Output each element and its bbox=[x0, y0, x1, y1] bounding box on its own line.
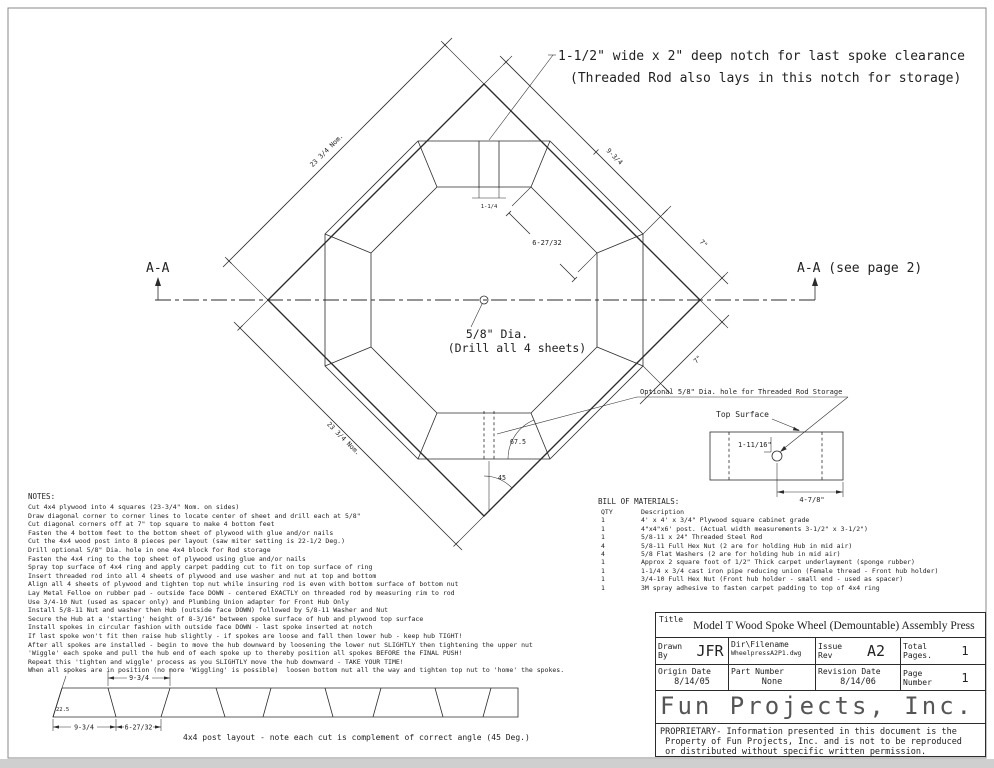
notch-annotation: 1-1/2" wide x 2" deep notch for last spo… bbox=[489, 49, 965, 140]
table-cell-desc: 1-1/4 x 3/4 cast iron pipe reducing unio… bbox=[641, 567, 988, 575]
rod-storage-detail: Optional 5/8" Dia. hole for Threaded Rod… bbox=[497, 388, 848, 504]
total-pages-value: 1 bbox=[947, 644, 983, 658]
filename-value: WheelpressA2P1.dwg bbox=[731, 649, 813, 658]
angle-dims: 67.5 45 bbox=[484, 420, 534, 488]
bom-title: BILL OF MATERIALS: bbox=[598, 497, 988, 506]
table-row: 45/8-11 Full Hex Nut (2 are for holding … bbox=[598, 542, 988, 550]
notes-lines: Cut 4x4 plywood into 4 squares (23-3/4" … bbox=[28, 503, 628, 675]
drawing-page: 1-1/4 5/8" Dia. (Drill all 4 sheets) 23 … bbox=[0, 0, 994, 768]
part-number-value: None bbox=[731, 676, 813, 688]
center-hole-leader bbox=[471, 304, 482, 327]
table-cell-qty: 1 bbox=[598, 516, 641, 524]
issue-rev-label: Issue Rev bbox=[818, 642, 854, 660]
notch-note-1: 1-1/2" wide x 2" deep notch for last spo… bbox=[558, 49, 965, 64]
center-hole-label-1: 5/8" Dia. bbox=[466, 327, 528, 341]
section-right-label: A-A (see page 2) bbox=[797, 261, 922, 276]
title-block: Title Model T Wood Spoke Wheel (Demounta… bbox=[655, 612, 986, 757]
notch-width-dim: 1-1/4 bbox=[481, 204, 498, 210]
post-angle-label: 22.5 bbox=[56, 707, 69, 713]
table-row: 11-1/4 x 3/4 cast iron pipe reducing uni… bbox=[598, 567, 988, 575]
post-dim-bottom-left-label: 9-3/4 bbox=[74, 724, 94, 732]
table-row: 15/8-11 x 24" Threaded Steel Rod bbox=[598, 533, 988, 541]
table-cell-qty: 1 bbox=[598, 567, 641, 575]
issue-rev-value: A2 bbox=[854, 642, 898, 660]
page-edge-shadow bbox=[0, 759, 994, 768]
company-name: Fun Projects, Inc. bbox=[656, 691, 985, 724]
spoke-notch: 1-1/4 bbox=[472, 141, 506, 210]
table-cell-desc: 5/8-11 Full Hex Nut (2 are for holding H… bbox=[641, 542, 988, 550]
table-cell-qty: 4 bbox=[598, 542, 641, 550]
dim-upper-right-side: 9-3/4 7" bbox=[484, 56, 728, 300]
drawn-by-label: Drawn By bbox=[658, 642, 694, 660]
table-cell-qty: 1 bbox=[598, 525, 641, 533]
dim-lower-left-label: 23 3/4 Nom. bbox=[325, 420, 362, 457]
table-cell-desc: 4"x4"x6' post. (Actual width measurement… bbox=[641, 525, 988, 533]
notch-note-2: (Threaded Rod also lays in this notch fo… bbox=[570, 71, 961, 86]
origin-date-value: 8/14/05 bbox=[658, 676, 726, 688]
table-cell-desc: 5/8 Flat Washers (2 are for holding hub … bbox=[641, 550, 988, 558]
title-label: Title bbox=[656, 613, 683, 624]
bom-section: BILL OF MATERIALS: QTY Description 14' x… bbox=[598, 497, 988, 592]
table-cell-qty: 1 bbox=[598, 533, 641, 541]
proprietary-notice: PROPRIETARY- Information presented in th… bbox=[656, 724, 985, 757]
dim-corner-lower-label: 7" bbox=[692, 354, 703, 365]
post-dim-top-label: 9-3/4 bbox=[129, 674, 149, 682]
bom-header-row: QTY Description bbox=[598, 508, 988, 516]
table-row: 1Approx 2 square foot of 1/2" Thick carp… bbox=[598, 558, 988, 566]
optional-hole-leader-left bbox=[497, 397, 637, 434]
total-pages-label: Total Pages. bbox=[903, 642, 947, 660]
storage-hole bbox=[772, 451, 782, 461]
page-number-value: 1 bbox=[947, 671, 983, 685]
table-row: 14"x4"x6' post. (Actual width measuremen… bbox=[598, 525, 988, 533]
table-cell-qty: 4 bbox=[598, 550, 641, 558]
dim-corner-upper-label: 7" bbox=[698, 238, 709, 249]
origin-date-label: Origin Date bbox=[658, 667, 726, 676]
angle-corner-label: 45 bbox=[498, 474, 506, 482]
post-dim-bottom-right-label: 6-27/32 bbox=[125, 724, 153, 732]
storage-block-outline bbox=[710, 432, 843, 480]
drawn-by-value: JFR bbox=[694, 642, 726, 660]
section-left-label: A-A bbox=[146, 261, 170, 276]
bom-qty-header: QTY bbox=[598, 508, 641, 516]
table-row: 13M spray adhesive to fasten carpet padd… bbox=[598, 584, 988, 592]
page-number-label: Page Number bbox=[903, 669, 947, 687]
revision-date-value: 8/14/06 bbox=[818, 676, 898, 688]
center-hole-label-2: (Drill all 4 sheets) bbox=[448, 341, 586, 355]
table-row: 45/8 Flat Washers (2 are for holding hub… bbox=[598, 550, 988, 558]
post-dim-bottom: 9-3/4 6-27/32 bbox=[53, 719, 161, 732]
post-outline bbox=[53, 688, 518, 717]
drawing-title: Model T Wood Spoke Wheel (Demountable) A… bbox=[683, 613, 975, 632]
notes-title: NOTES: bbox=[28, 492, 628, 501]
table-cell-qty: 1 bbox=[598, 558, 641, 566]
post-layout-view: 22.5 9-3/4 bbox=[53, 672, 530, 742]
notes-section: NOTES: Cut 4x4 plywood into 4 squares (2… bbox=[28, 492, 628, 675]
table-row: 13/4-10 Full Hex Nut (Front hub holder -… bbox=[598, 575, 988, 583]
table-row: 14' x 4' x 3/4" Plywood square cabinet g… bbox=[598, 516, 988, 524]
angle-block-label: 67.5 bbox=[510, 438, 526, 446]
part-number-label: Part Number bbox=[731, 667, 813, 676]
optional-hole-label: Optional 5/8" Dia. hole for Threaded Rod… bbox=[640, 388, 842, 396]
main-plan-view: 1-1/4 5/8" Dia. (Drill all 4 sheets) 23 … bbox=[146, 38, 965, 550]
dim-block-inner-label: 6-27/32 bbox=[532, 239, 562, 247]
table-cell-desc: 3M spray adhesive to fasten carpet paddi… bbox=[641, 584, 988, 592]
revision-date-label: Revision Date bbox=[818, 667, 898, 676]
section-marker-left: A-A bbox=[146, 261, 170, 300]
detail-depth-label: 1-11/16" bbox=[738, 441, 772, 449]
table-cell-desc: 4' x 4' x 3/4" Plywood square cabinet gr… bbox=[641, 516, 988, 524]
table-cell-qty: 1 bbox=[598, 575, 641, 583]
section-marker-right: A-A (see page 2) bbox=[797, 261, 922, 300]
optional-hole-leader-right bbox=[782, 397, 848, 450]
table-cell-qty: 1 bbox=[598, 584, 641, 592]
table-cell-desc: 3/4-10 Full Hex Nut (Front hub holder - … bbox=[641, 575, 988, 583]
dim-block-inner: 6-27/32 bbox=[506, 187, 597, 282]
filename-label: Dir\Filename bbox=[731, 640, 813, 649]
table-cell-desc: Approx 2 square foot of 1/2" Thick carpe… bbox=[641, 558, 988, 566]
post-layout-caption: 4x4 post layout - note each cut is compl… bbox=[183, 733, 530, 742]
post-cut-lines bbox=[108, 688, 491, 717]
bom-rows: 14' x 4' x 3/4" Plywood square cabinet g… bbox=[598, 516, 988, 592]
bom-desc-header: Description bbox=[641, 508, 988, 516]
top-surface-label: Top Surface bbox=[716, 410, 769, 419]
dim-upper-left-side: 23 3/4 Nom. bbox=[223, 38, 484, 300]
table-cell-desc: 5/8-11 x 24" Threaded Steel Rod bbox=[641, 533, 988, 541]
